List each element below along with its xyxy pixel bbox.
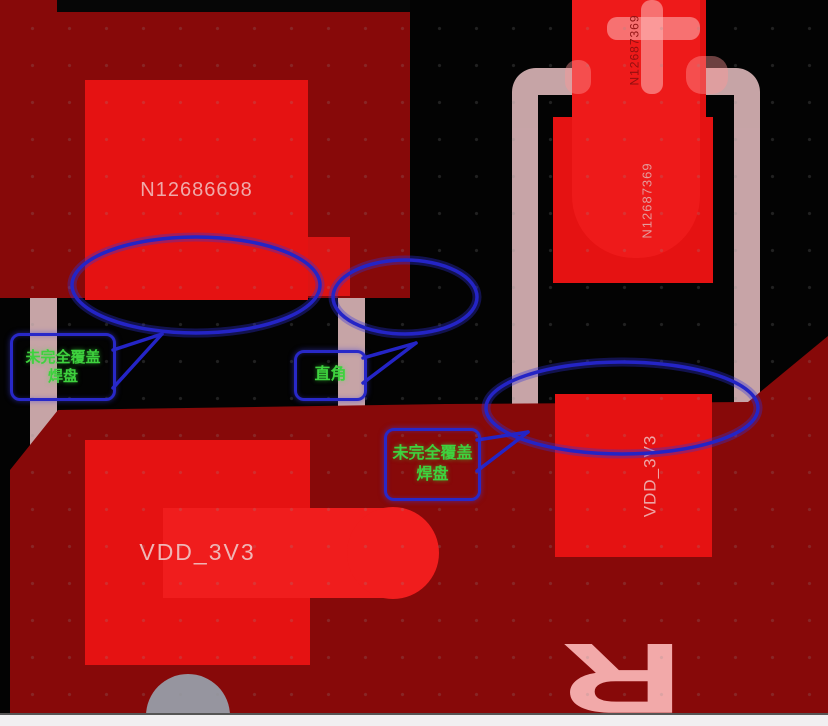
net-label-bottom-left: VDD_3V3 xyxy=(139,539,255,566)
net-label-top-right: N12687369 xyxy=(640,162,655,238)
callout-left-line2: 焊盘 xyxy=(48,367,78,387)
bottom-border-strip xyxy=(0,713,828,726)
net-label-bottom-right: VDD_3V3 xyxy=(640,434,660,517)
mask-bump-right xyxy=(686,56,728,94)
callout-right-line1: 未完全覆盖 xyxy=(392,444,472,465)
net-label-bottom-right-wrap: VDD_3V3 xyxy=(585,398,715,553)
net-label-top-left: N12686698 xyxy=(140,179,252,202)
callout-pad-not-covered-right[interactable]: 未完全覆盖 焊盘 xyxy=(384,428,481,501)
pour-clearance-strip xyxy=(57,0,410,12)
pcb-editor-canvas: N12686698 N12687369 VDD_3V3 VDD_3V3 N126… xyxy=(0,0,828,726)
silkscreen-refdes[interactable]: R xyxy=(552,638,692,718)
refdes-text: R xyxy=(561,638,684,718)
trace-net-label: N12687369 xyxy=(628,14,642,85)
callout-middle-line1: 直角 xyxy=(314,365,346,386)
callout-right-line2: 焊盘 xyxy=(416,465,448,486)
callout-middle-beak2 xyxy=(363,343,416,383)
callout-middle-beak xyxy=(363,343,416,358)
net-label-bottom-left-wrap: VDD_3V3 xyxy=(85,440,310,665)
net-label-top-right-wrap: N12687369 xyxy=(575,125,720,275)
trace-stub-right-angle[interactable] xyxy=(306,237,350,296)
callout-right-angle[interactable]: 直角 xyxy=(294,350,367,401)
pad-top-left[interactable]: N12686698 xyxy=(85,80,308,300)
trace-round-cap[interactable] xyxy=(347,507,439,599)
trace-net-label-wrap: N12687369 xyxy=(580,0,690,100)
callout-pad-not-covered-left[interactable]: 未完全覆盖 焊盘 xyxy=(10,333,116,401)
callout-left-line1: 未完全覆盖 xyxy=(25,348,100,368)
